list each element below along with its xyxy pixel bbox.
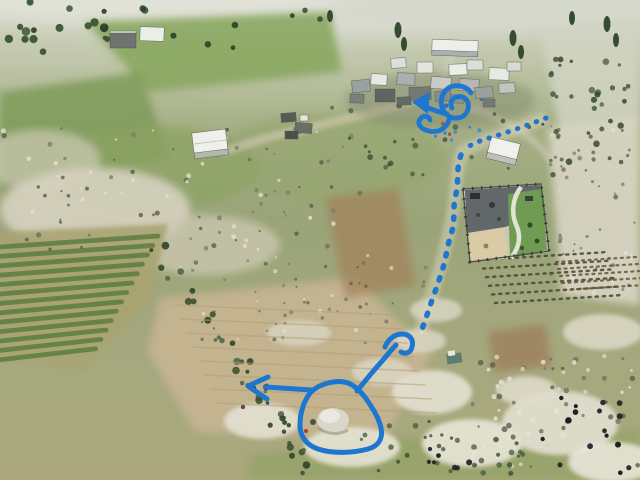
north-shed <box>432 39 479 57</box>
walled-compound <box>463 184 549 262</box>
person-in-red <box>304 429 308 433</box>
aerial-photo <box>0 0 640 480</box>
aerial-photo-canvas <box>0 0 640 480</box>
white-barn <box>192 129 229 159</box>
arrow-west-line <box>266 387 311 390</box>
